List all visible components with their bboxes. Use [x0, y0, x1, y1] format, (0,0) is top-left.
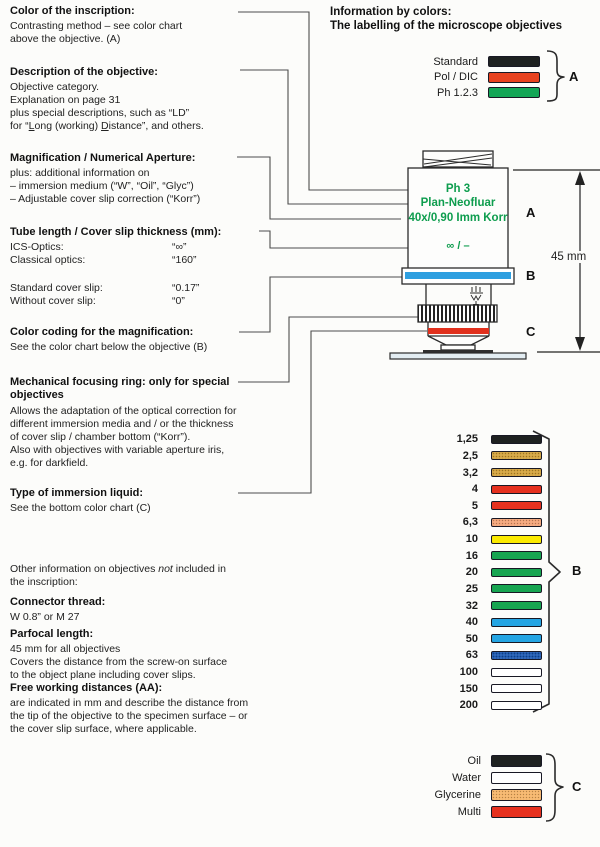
note-immersion-liquid: Type of immersion liquid: See the bottom…: [10, 487, 342, 515]
color-chart-label: 25: [398, 583, 478, 595]
note-heading: Description of the objective:: [10, 66, 342, 78]
text-segment: istance”, and others.: [109, 120, 204, 132]
text-line: See the bottom color chart (C): [10, 502, 342, 515]
text-line: plus: additional information on: [10, 167, 342, 180]
color-swatch: [491, 755, 542, 767]
text-line: – immersion medium (“W”, “Oil”, “Glyc”): [10, 180, 342, 193]
color-swatch: [491, 535, 542, 544]
color-swatch: [491, 668, 542, 677]
page: Information by colors: The labelling of …: [0, 0, 600, 847]
color-swatch: [491, 701, 542, 710]
knurled-focusing-ring: [418, 305, 497, 322]
text-line: different immersion media and / or the t…: [10, 418, 342, 431]
color-chart-label: 63: [398, 649, 478, 661]
color-chart-label: Pol / DIC: [358, 71, 478, 83]
text-line: See the color chart below the objective …: [10, 341, 342, 354]
brace-a: [547, 51, 564, 101]
note-heading: Free working distances (AA):: [10, 682, 342, 694]
zone-label-b: B: [526, 268, 535, 283]
zone-label-c: C: [526, 324, 535, 339]
color-chart-row: Standard: [358, 54, 540, 70]
kv-value: “0.17”: [172, 282, 199, 295]
color-chart-row: 4: [398, 481, 542, 498]
color-chart-row: 50: [398, 631, 542, 648]
objective-magnification-label: 40x/0,90 Imm Korr: [408, 212, 507, 224]
objective-name-label: Plan-Neofluar: [421, 197, 496, 209]
color-chart-row: 5: [398, 498, 542, 515]
color-swatch: [491, 468, 542, 477]
kv-row: Classical optics:“160”: [10, 254, 342, 267]
objective-contrast-label: Ph 3: [446, 183, 470, 195]
note-connector-thread: Connector thread: W 0.8” or M 27: [10, 596, 342, 624]
color-chart-b: 1,252,53,2456,31016202532405063100150200: [398, 431, 542, 714]
text-line: Other information on objectives not incl…: [10, 563, 342, 576]
text-line: Also with objectives with variable apert…: [10, 444, 342, 457]
note-heading: Tube length / Cover slip thickness (mm):: [10, 226, 342, 238]
note-heading: Mechanical focusing ring: only for speci…: [10, 376, 245, 402]
note-other-information: Other information on objectives not incl…: [10, 563, 342, 589]
color-chart-row: Water: [388, 769, 542, 786]
color-chart-label: 32: [398, 600, 478, 612]
note-heading: Type of immersion liquid:: [10, 487, 342, 499]
color-swatch: [491, 789, 542, 801]
text-line: above the objective. (A): [10, 33, 342, 46]
color-chart-label: 40: [398, 616, 478, 628]
text-line: plus special descriptions, such as “LD”: [10, 107, 342, 120]
chart-c-brace-label: C: [572, 779, 581, 794]
color-chart-row: 200: [398, 697, 542, 714]
kv-row: ICS-Optics:“∞”: [10, 241, 342, 254]
color-chart-row: 20: [398, 564, 542, 581]
color-chart-row: Pol / DIC: [358, 70, 540, 86]
kv-label: Without cover slip:: [10, 295, 172, 308]
color-chart-row: 100: [398, 664, 542, 681]
color-swatch: [491, 601, 542, 610]
color-chart-label: 2,5: [398, 450, 478, 462]
text-segment: for “: [10, 120, 29, 132]
text-line: Contrasting method – see color chart: [10, 20, 342, 33]
text-segment: ong (working): [35, 120, 102, 132]
note-parfocal-length: Parfocal length: 45 mm for all objective…: [10, 628, 342, 682]
note-body: 45 mm for all objectivesCovers the dista…: [10, 643, 342, 682]
note-heading: Color coding for the magnification:: [10, 326, 342, 338]
header-line-2: The labelling of the microscope objectiv…: [330, 19, 596, 33]
color-swatch: [491, 518, 542, 527]
text-line: Covers the distance from the screw-on su…: [10, 656, 342, 669]
text-line: are indicated in mm and describe the dis…: [10, 697, 342, 710]
color-chart-row: 16: [398, 547, 542, 564]
kv-label: Standard cover slip:: [10, 282, 172, 295]
note-heading: Color of the inscription:: [10, 5, 342, 17]
text-line: 45 mm for all objectives: [10, 643, 342, 656]
text-line: Objective category.: [10, 81, 342, 94]
note-mechanical-focusing-ring: Mechanical focusing ring: only for speci…: [10, 376, 342, 470]
objective-neck: [426, 284, 491, 305]
text-line: the cover slip surface, where applicable…: [10, 723, 342, 736]
text-segment: Other information on objectives: [10, 563, 158, 575]
text-line: – Adjustable cover slip correction (“Kor…: [10, 193, 342, 206]
color-chart-label: 4: [398, 483, 478, 495]
text-line: e.g. for darkfield.: [10, 457, 342, 470]
kv-value: “∞”: [172, 241, 186, 254]
note-color-coding: Color coding for the magnification: See …: [10, 326, 342, 354]
color-chart-label: 20: [398, 566, 478, 578]
header-line-1: Information by colors:: [330, 5, 596, 19]
color-chart-label: 50: [398, 633, 478, 645]
color-chart-row: Glycerine: [388, 786, 542, 803]
objective-tube-label: ∞ / –: [446, 240, 469, 252]
kv-row: Standard cover slip:“0.17”: [10, 282, 342, 295]
text-line: to the object plane including cover slip…: [10, 669, 342, 682]
color-swatch: [491, 501, 542, 510]
note-heading: Magnification / Numerical Aperture:: [10, 152, 342, 164]
note-body: W 0.8” or M 27: [10, 611, 342, 624]
note-free-working-distances: Free working distances (AA): are indicat…: [10, 682, 342, 736]
color-swatch: [491, 568, 542, 577]
color-chart-row: 25: [398, 581, 542, 598]
note-heading: Parfocal length:: [10, 628, 342, 640]
text-segment: included in: [173, 563, 226, 575]
note-body: are indicated in mm and describe the dis…: [10, 697, 342, 736]
chart-a-brace-label: A: [569, 69, 578, 84]
color-swatch: [491, 772, 542, 784]
kv-value: “0”: [172, 295, 185, 308]
color-chart-row: Multi: [388, 803, 542, 820]
color-chart-label: Oil: [388, 755, 481, 767]
kv-label: Classical optics:: [10, 254, 172, 267]
note-heading: Connector thread:: [10, 596, 342, 608]
note-kv-table: ICS-Optics:“∞”Classical optics:“160”: [10, 241, 342, 267]
color-swatch: [491, 435, 542, 444]
text-segment: not: [158, 563, 173, 575]
color-chart-row: 1,25: [398, 431, 542, 448]
kv-label: ICS-Optics:: [10, 241, 172, 254]
color-swatch: [491, 634, 542, 643]
note-body: Objective category.Explanation on page 3…: [10, 81, 342, 133]
text-line: Explanation on page 31: [10, 94, 342, 107]
note-body: Allows the adaptation of the optical cor…: [10, 405, 342, 470]
objective-tip: [441, 345, 475, 350]
color-chart-row: 10: [398, 531, 542, 548]
text-line: W 0.8” or M 27: [10, 611, 342, 624]
color-chart-label: 100: [398, 666, 478, 678]
color-chart-label: 16: [398, 550, 478, 562]
color-chart-row: 40: [398, 614, 542, 631]
color-chart-a: StandardPol / DICPh 1.2.3: [358, 54, 540, 101]
note-body: Contrasting method – see color chartabov…: [10, 20, 342, 46]
magnification-color-stripe: [405, 272, 511, 279]
note-body: See the color chart below the objective …: [10, 341, 342, 354]
color-chart-label: 6,3: [398, 516, 478, 528]
objective-thread: [423, 151, 493, 167]
spacer: [10, 267, 342, 282]
dimension-label: 45 mm: [549, 251, 588, 263]
immersion-color-stripe: [428, 328, 489, 334]
color-chart-row: 2,5: [398, 448, 542, 465]
color-chart-row: 32: [398, 597, 542, 614]
color-chart-label: 3,2: [398, 467, 478, 479]
color-chart-label: Standard: [358, 56, 478, 68]
text-line: the tip of the objective to the specimen…: [10, 710, 342, 723]
kv-row: Without cover slip:“0”: [10, 295, 342, 308]
color-chart-label: Glycerine: [388, 789, 481, 801]
color-chart-row: 150: [398, 680, 542, 697]
text-line: Allows the adaptation of the optical cor…: [10, 405, 342, 418]
color-chart-row: Oil: [388, 752, 542, 769]
color-swatch: [491, 684, 542, 693]
note-body: Other information on objectives not incl…: [10, 563, 342, 589]
note-tube-length: Tube length / Cover slip thickness (mm):…: [10, 226, 342, 308]
note-color-of-inscription: Color of the inscription: Contrasting me…: [10, 5, 342, 46]
text-line: for “Long (working) Distance”, and other…: [10, 120, 342, 133]
color-swatch: [491, 651, 542, 660]
color-chart-label: 5: [398, 500, 478, 512]
note-body: plus: additional information on– immersi…: [10, 167, 342, 206]
color-chart-label: Water: [388, 772, 481, 784]
chart-b-brace-label: B: [572, 563, 581, 578]
note-body: See the bottom color chart (C): [10, 502, 342, 515]
specimen-slide: [390, 353, 526, 359]
color-chart-label: 150: [398, 683, 478, 695]
color-chart-label: Ph 1.2.3: [358, 87, 478, 99]
color-swatch: [488, 72, 540, 83]
note-magnification-aperture: Magnification / Numerical Aperture: plus…: [10, 152, 342, 206]
color-swatch: [491, 451, 542, 460]
color-swatch: [488, 56, 540, 67]
color-swatch: [491, 806, 542, 818]
text-segment: D: [101, 120, 109, 132]
color-chart-row: Ph 1.2.3: [358, 85, 540, 101]
color-swatch: [491, 485, 542, 494]
color-chart-c: OilWaterGlycerineMulti: [388, 752, 542, 820]
text-line: of cover slip / chamber bottom (“Korr”).: [10, 431, 342, 444]
color-chart-row: 3,2: [398, 464, 542, 481]
color-swatch: [491, 584, 542, 593]
color-swatch: [488, 87, 540, 98]
brace-c: [546, 754, 563, 821]
zone-label-a: A: [526, 205, 535, 220]
note-description-of-objective: Description of the objective: Objective …: [10, 66, 342, 133]
color-swatch: [491, 618, 542, 627]
color-chart-label: 200: [398, 699, 478, 711]
text-line: the inscription:: [10, 576, 342, 589]
page-header: Information by colors: The labelling of …: [330, 5, 596, 33]
color-swatch: [491, 551, 542, 560]
note-kv-table: Standard cover slip:“0.17”Without cover …: [10, 282, 342, 308]
color-chart-label: 10: [398, 533, 478, 545]
color-chart-label: Multi: [388, 806, 481, 818]
objective-cone: [428, 336, 489, 345]
color-chart-label: 1,25: [398, 433, 478, 445]
kv-value: “160”: [172, 254, 197, 267]
color-chart-row: 63: [398, 647, 542, 664]
color-chart-row: 6,3: [398, 514, 542, 531]
